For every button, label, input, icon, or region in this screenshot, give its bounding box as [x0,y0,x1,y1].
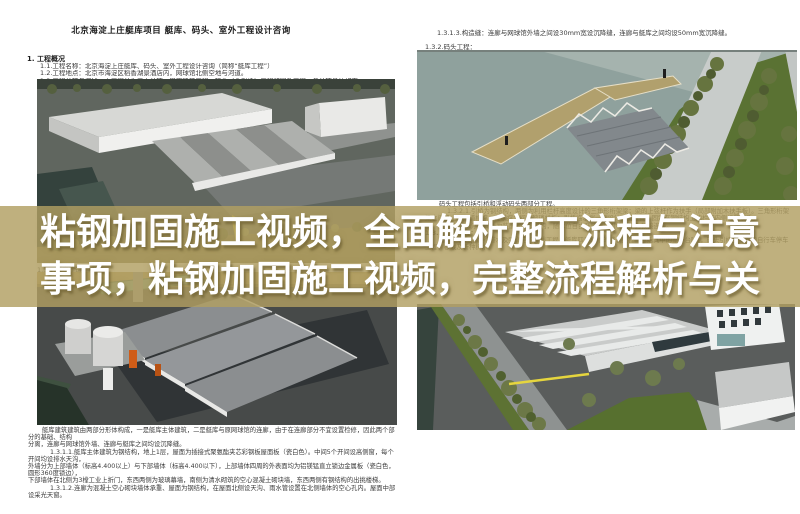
text-line: 艇库建筑建筑由两部分形体构成，一是艇库主体建筑，二是艇库与原网球馆的连廊，由于在… [28,427,400,441]
text-line: 外墙分为上部墙体（标高4.400以上）与下部墙体（标高4.400以下），上部墙体… [28,463,400,477]
text-line: 1.2.工程地点：北京市海淀区稻香湖景酒店内，网球馆北侧空地与河道。 [40,70,396,77]
boathouse-description-paragraph: 艇库建筑建筑由两部分形体构成，一是艇库主体建筑，二是艇库与原网球馆的连廊，由于在… [28,427,400,499]
text-line: 1.3.1.2.连廊为混凝土空心砌块墙体承重、屋面为钢结构，在屋面北侧设天沟、雨… [28,485,400,499]
page: 北京海淀上庄艇库项目 艇库、码头、室外工程设计咨询 1. 工程概况 1.1.工程… [0,0,800,514]
text-line: 下部墙体在北侧为3樘工业上折门，东西两侧为玻璃幕墙，南侧为清水砌筑的空心混凝土砌… [28,477,400,484]
text-line: 1.1.工程名称：北京海淀上庄艇库、码头、室外工程设计咨询（简称“艇库工程”） [40,63,396,70]
headline-line-1: 粘钢加固施工视频，全面解析施工流程与注意 [0,206,800,256]
text-line: 分离，连廊与网球馆外墙、连廊与艇库之间均设沉降缝。 [28,441,400,448]
dock-and-truss-bridge-rendering [417,50,797,200]
document-title: 北京海淀上庄艇库项目 艇库、码头、室外工程设计咨询 [35,24,327,36]
joint-note-line: 1.3.1.3.构造缝：连廊与网球馆外墙之间设30mm宽设沉降缝，连廊与艇库之间… [437,27,731,37]
dock-bridge-art [417,50,797,200]
headline-banner-overlay: 粘钢加固施工视频，全面解析施工流程与注意 事项，粘钢加固施工视频，完整流程解析与… [0,206,800,307]
headline-line-2: 事项，粘钢加固施工视频，完整流程解析与关 [0,256,800,303]
text-line: 1.3.1.1.艇库主体建筑为钢结构，地上1层，屋面为插接式聚氨酯夹芯彩钢板屋面… [28,449,400,463]
site-aerial-parking-art [417,304,795,430]
site-aerial-parking-rendering [417,304,795,430]
